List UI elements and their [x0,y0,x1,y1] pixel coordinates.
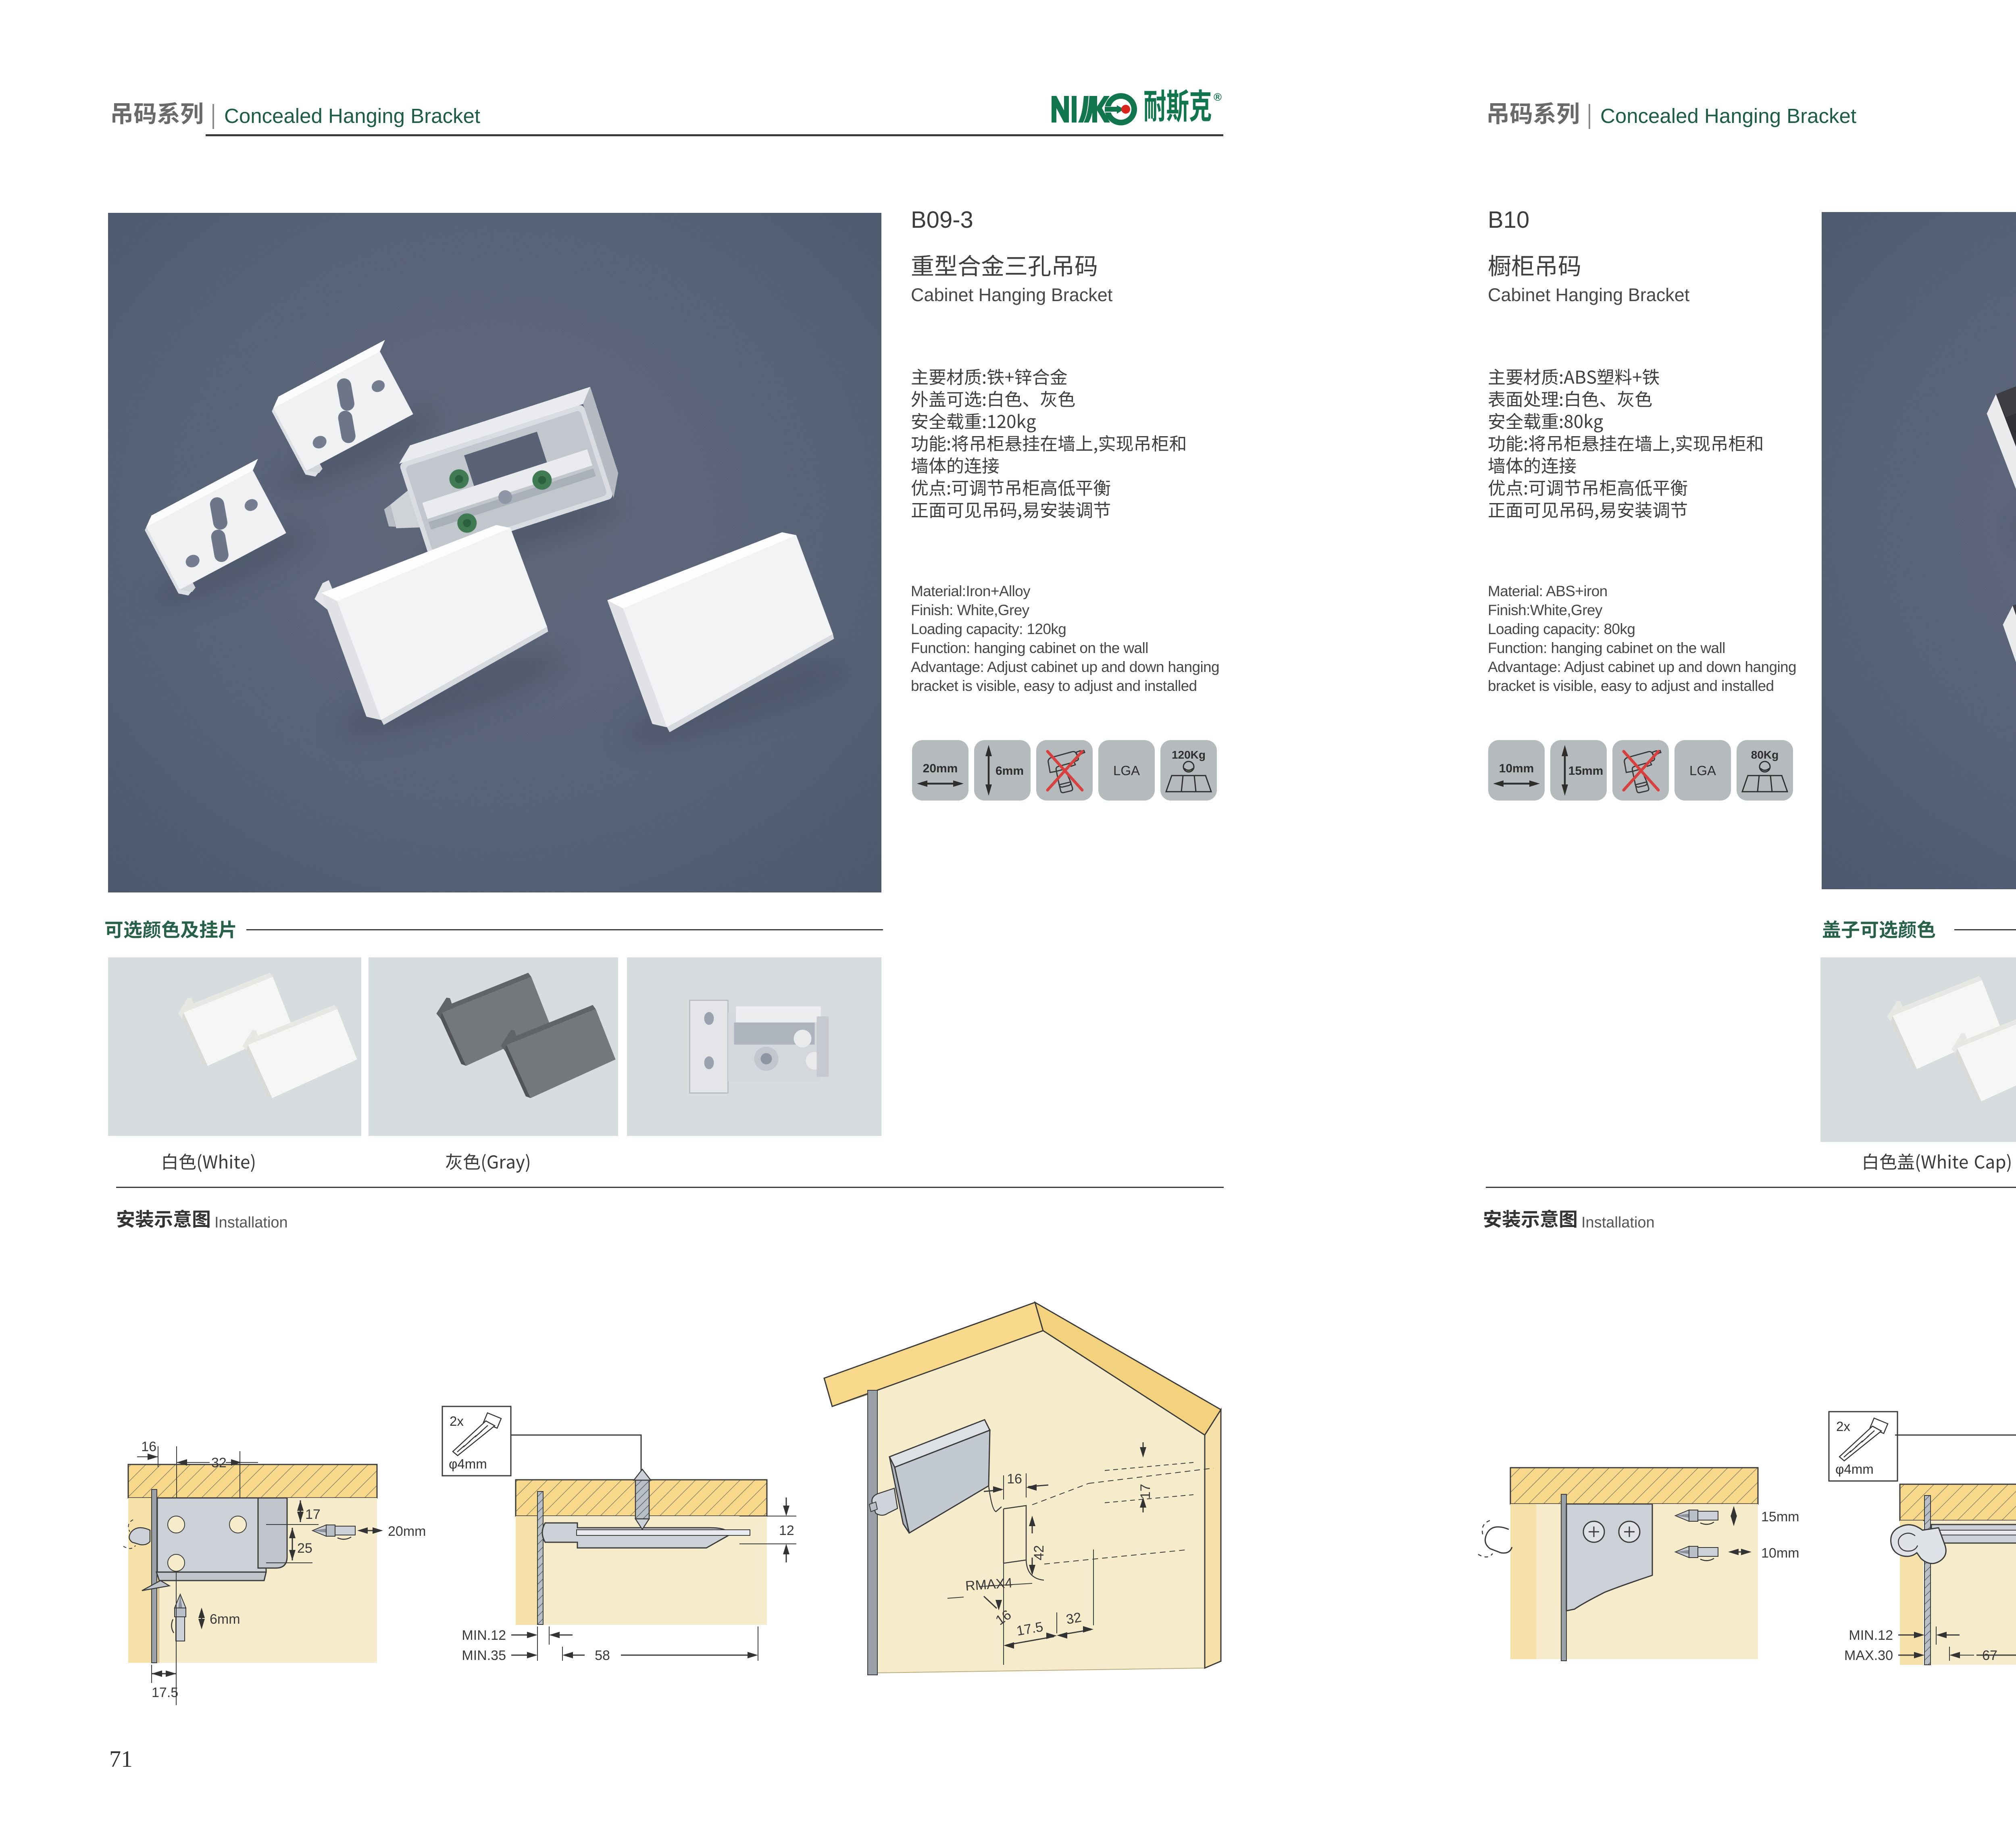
svg-text:17.5: 17.5 [152,1685,178,1700]
svg-text:15mm: 15mm [1761,1509,1799,1525]
svg-text:17: 17 [1138,1484,1153,1499]
svg-text:120Kg: 120Kg [1172,749,1206,761]
svg-text:20mm: 20mm [388,1524,426,1539]
svg-text:10mm: 10mm [1499,762,1534,775]
svg-text:58: 58 [595,1648,610,1663]
svg-text:6mm: 6mm [210,1612,240,1627]
svg-text:16: 16 [141,1439,156,1454]
svg-text:2x: 2x [450,1414,464,1429]
svg-text:LGA: LGA [1689,763,1716,778]
svg-text:80Kg: 80Kg [1751,749,1779,761]
svg-text:LGA: LGA [1113,763,1140,778]
svg-text:15mm: 15mm [1568,764,1604,778]
svg-text:32: 32 [211,1455,227,1471]
svg-text:20mm: 20mm [923,762,958,775]
svg-text:42: 42 [1031,1545,1047,1560]
svg-text:MAX.30: MAX.30 [1844,1648,1893,1663]
svg-text:φ4mm: φ4mm [1835,1462,1874,1477]
svg-text:17: 17 [305,1507,321,1522]
svg-text:16: 16 [1007,1471,1022,1487]
svg-text:MIN.12: MIN.12 [1849,1628,1893,1643]
svg-text:10mm: 10mm [1761,1545,1799,1561]
svg-text:25: 25 [297,1541,312,1556]
svg-text:32: 32 [1065,1610,1083,1627]
svg-text:2x: 2x [1836,1419,1850,1434]
svg-text:φ4mm: φ4mm [449,1456,487,1471]
svg-text:MIN.35: MIN.35 [462,1648,506,1663]
svg-text:67: 67 [1982,1648,1997,1663]
svg-text:12: 12 [779,1523,794,1538]
svg-text:6mm: 6mm [996,764,1024,778]
svg-text:MIN.12: MIN.12 [462,1628,506,1643]
